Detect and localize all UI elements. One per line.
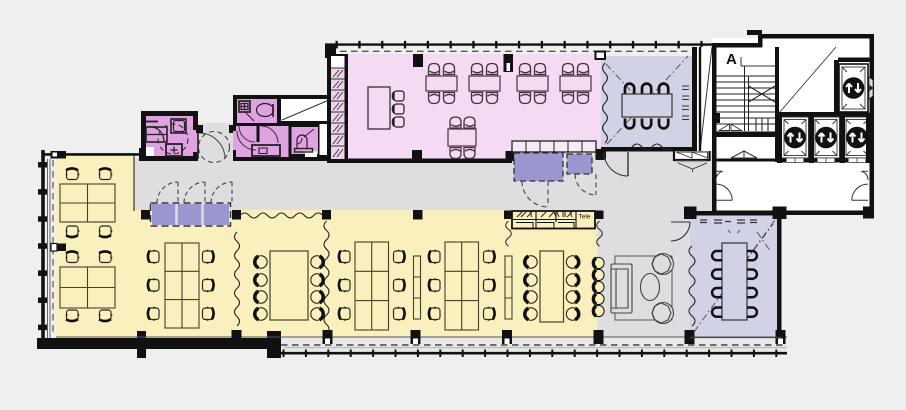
svg-text:A: A [726, 51, 737, 68]
svg-text:Tele: Tele [579, 214, 591, 221]
